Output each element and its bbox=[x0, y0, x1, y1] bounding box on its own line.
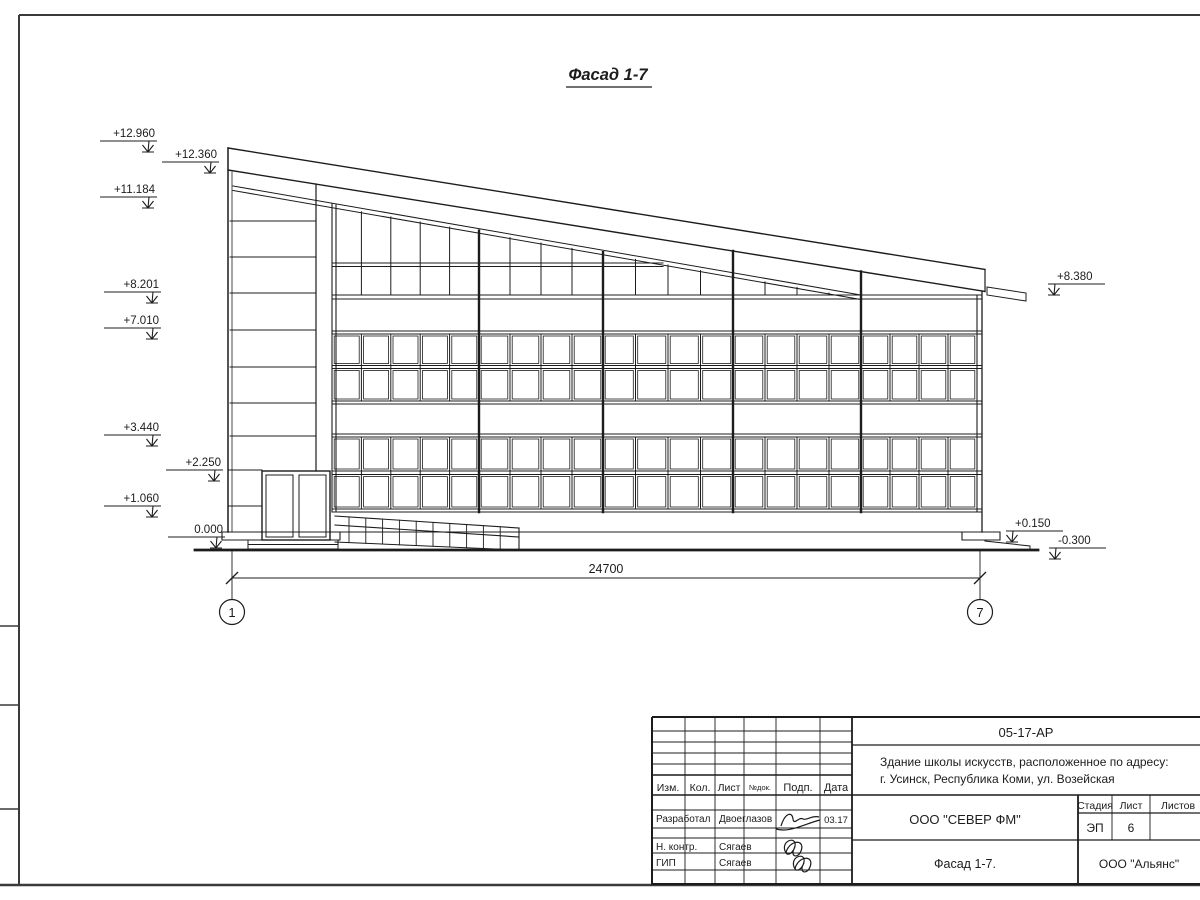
col-kol: Кол. bbox=[690, 782, 711, 794]
elevation-label: +8.380 bbox=[1057, 271, 1093, 283]
entrance-ramp bbox=[335, 516, 519, 550]
col-doc: №док. bbox=[749, 783, 771, 792]
view-title-text: Фасад 1-7 bbox=[568, 66, 648, 84]
sheets-label: Листов bbox=[1161, 800, 1196, 812]
roof-fascia bbox=[228, 148, 1026, 301]
elevation-label: +8.201 bbox=[124, 279, 160, 291]
roof-soffit bbox=[233, 186, 861, 300]
row-name: Сягаев bbox=[719, 858, 752, 869]
sheet-number: 6 bbox=[1128, 821, 1135, 835]
signature-marks bbox=[776, 814, 820, 872]
drawing-sheet: Фасад 1-7 bbox=[0, 0, 1200, 900]
facade-drawing-svg: Фасад 1-7 bbox=[0, 0, 1200, 900]
project-line1: Здание школы искусств, расположенное по … bbox=[880, 755, 1169, 769]
building-outline bbox=[195, 148, 1038, 550]
axis-bubbles bbox=[220, 600, 993, 625]
elevation-label: +12.360 bbox=[175, 149, 217, 161]
stage-label: Стадия bbox=[1077, 800, 1113, 812]
dimension-value: 24700 bbox=[589, 562, 624, 576]
elevation-label: +1.060 bbox=[124, 493, 160, 505]
firm-name: ООО "Альянс" bbox=[1099, 857, 1179, 871]
elevation-label: -0.300 bbox=[1058, 535, 1091, 547]
axis-label-1: 1 bbox=[228, 605, 235, 620]
sheet-label: Лист bbox=[1120, 800, 1143, 812]
row-role: Разработал bbox=[656, 813, 711, 825]
row-date: 03.17 bbox=[824, 815, 848, 826]
right-wall bbox=[962, 291, 1030, 550]
row-name: Двоеглазов bbox=[719, 814, 772, 825]
curtain-wall-grid bbox=[332, 204, 982, 512]
drawing-title: Фасад 1-7. bbox=[934, 857, 996, 871]
elevation-label: +7.010 bbox=[124, 315, 160, 327]
elevation-label: +2.250 bbox=[186, 457, 222, 469]
col-data: Дата bbox=[824, 782, 849, 794]
view-title: Фасад 1-7 bbox=[566, 66, 652, 87]
col-izm: Изм. bbox=[657, 782, 680, 794]
project-line2: г. Усинск, Республика Коми, ул. Возейска… bbox=[880, 772, 1115, 786]
elevation-label: +3.440 bbox=[124, 422, 160, 434]
title-block-text: Изм. Кол. Лист №док. Подп. Дата Разработ… bbox=[656, 725, 1195, 871]
elevation-label: +11.184 bbox=[114, 184, 156, 196]
row-role: Н. контр. bbox=[656, 842, 697, 853]
elevation-label: +0.150 bbox=[1015, 518, 1051, 530]
doc-number: 05-17-АР bbox=[999, 725, 1054, 740]
col-podp: Подп. bbox=[783, 782, 812, 794]
axis-label-7: 7 bbox=[976, 605, 983, 620]
elevation-label: +12.960 bbox=[113, 128, 155, 140]
row-name: Сягаев bbox=[719, 842, 752, 853]
entrance-door bbox=[248, 471, 338, 549]
stair-tower bbox=[222, 148, 340, 540]
row-role: ГИП bbox=[656, 858, 676, 869]
stage-value: ЭП bbox=[1086, 821, 1103, 835]
elevation-label: 0.000 bbox=[194, 524, 223, 536]
org-name: ООО "СЕВЕР ФМ" bbox=[909, 812, 1021, 827]
col-list: Лист bbox=[718, 782, 741, 794]
